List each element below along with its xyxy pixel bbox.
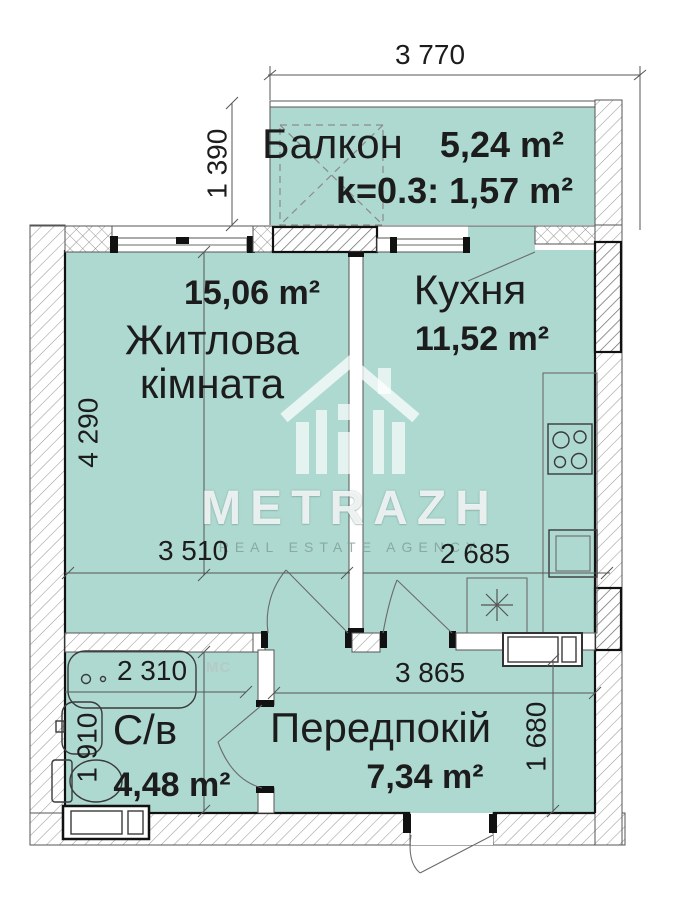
area-label-living: 15,06 m² [152,276,352,312]
dimension-label-bathroom-width: 2 310 [77,656,227,685]
wardrobe [503,633,582,666]
dimension-label-hall-height: 1 680 [521,677,550,797]
dimension-label-living-height: 4 290 [73,373,102,493]
dimension-label-hall-width: 3 865 [355,658,505,687]
area-label-kitchen: 11,52 m² [382,322,582,358]
room-label-living: Житлова кімната [102,318,322,406]
area-label-hall: 7,34 m² [315,760,535,796]
washing-machine [63,806,149,839]
dimension-label-living-width: 3 510 [118,536,268,565]
dimension-label-balcony-height: 1 390 [202,104,231,224]
floor-plan: METRAZH REAL ESTATE AGENCY Балкон 5,24 m… [0,0,700,910]
room-label-hall: Передпокій [270,706,490,750]
room-label-kitchen: Кухня [370,268,570,312]
area-label-bathroom: 4,48 m² [82,768,262,804]
dimension-label-kitchen-width: 2 685 [400,539,550,568]
room-label-balcony: Балкон [262,122,403,166]
dimension-label-bathroom-height: 1 910 [72,688,101,808]
coef-label-balcony: k=0.3: 1,57 m² [336,172,564,210]
area-label-balcony: 5,24 m² [412,126,564,164]
dimension-label-top-width: 3 770 [355,40,505,69]
